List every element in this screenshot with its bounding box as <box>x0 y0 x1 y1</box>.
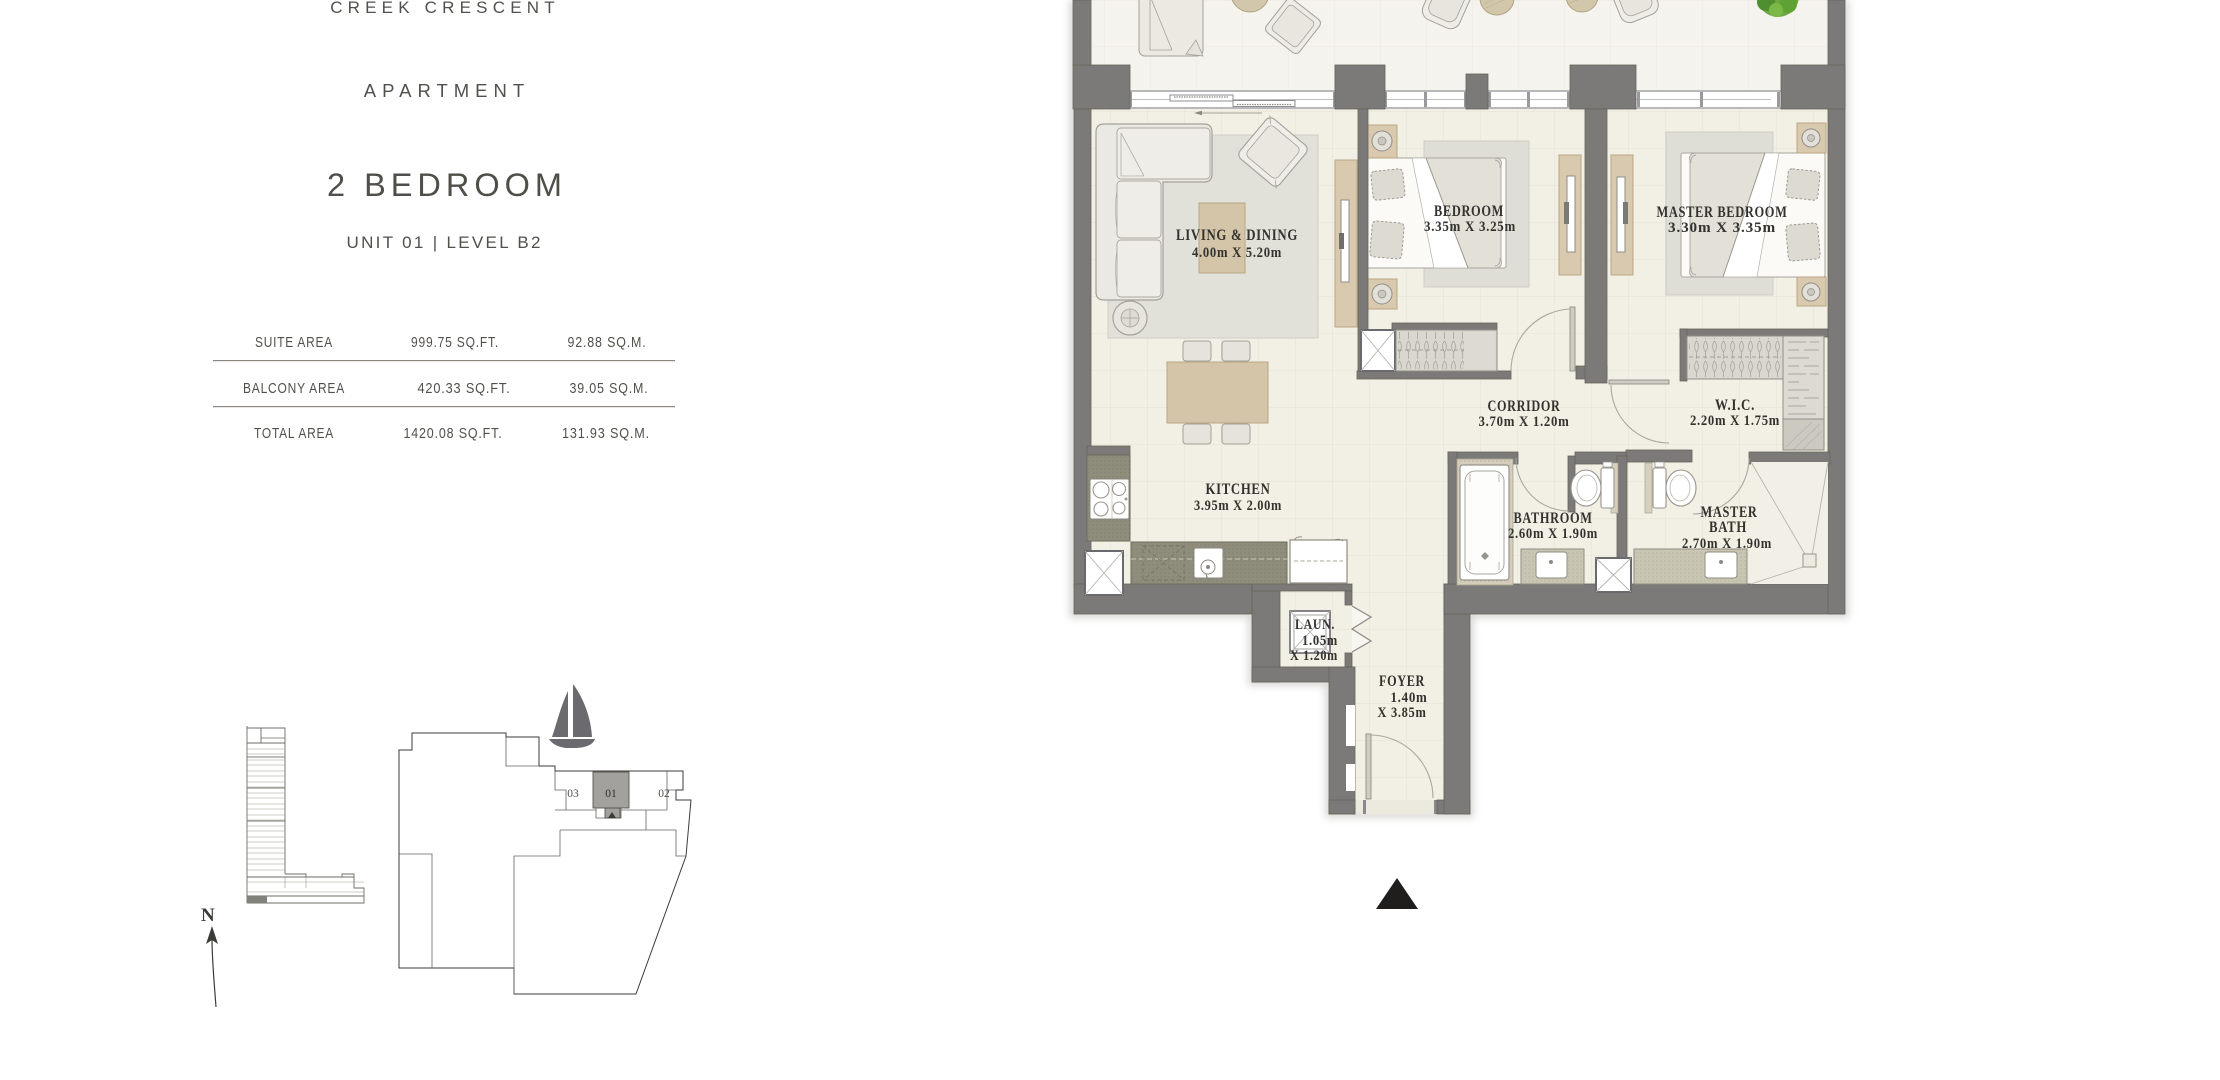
svg-text:FOYER: FOYER <box>1379 673 1425 690</box>
svg-text:02: 02 <box>658 788 670 800</box>
svg-text:X 3.85m: X 3.85m <box>1378 705 1427 721</box>
svg-text:UNIT 01 | LEVEL B2: UNIT 01 | LEVEL B2 <box>347 233 546 252</box>
svg-text:MASTER BEDROOM: MASTER BEDROOM <box>1657 204 1788 221</box>
svg-text:3.70m X 1.20m: 3.70m X 1.20m <box>1479 414 1570 430</box>
svg-text:SUITE AREA: SUITE AREA <box>255 334 333 351</box>
svg-text:420.33 SQ.FT.: 420.33 SQ.FT. <box>418 380 511 397</box>
svg-text:3.95m X 2.00m: 3.95m X 2.00m <box>1194 498 1282 514</box>
svg-text:BATHROOM: BATHROOM <box>1514 510 1593 527</box>
svg-text:999.75 SQ.FT.: 999.75 SQ.FT. <box>411 334 499 351</box>
svg-text:131.93 SQ.M.: 131.93 SQ.M. <box>562 425 650 442</box>
svg-text:2.70m X 1.90m: 2.70m X 1.90m <box>1682 536 1772 552</box>
svg-text:KITCHEN: KITCHEN <box>1206 481 1271 498</box>
svg-text:APARTMENT: APARTMENT <box>364 80 530 101</box>
svg-text:W.I.C.: W.I.C. <box>1715 397 1755 414</box>
svg-text:N: N <box>201 905 215 926</box>
svg-text:LIVING & DINING: LIVING & DINING <box>1176 227 1298 244</box>
svg-text:LAUN.: LAUN. <box>1295 617 1335 633</box>
svg-text:01: 01 <box>605 788 617 800</box>
svg-text:CORRIDOR: CORRIDOR <box>1488 398 1561 415</box>
svg-text:TOTAL AREA: TOTAL AREA <box>254 425 334 442</box>
svg-text:2.20m X 1.75m: 2.20m X 1.75m <box>1690 413 1780 429</box>
svg-text:2 BEDROOM: 2 BEDROOM <box>327 167 567 203</box>
svg-text:CREEK CRESCENT: CREEK CRESCENT <box>330 0 560 17</box>
svg-text:4.00m X 5.20m: 4.00m X 5.20m <box>1192 245 1282 261</box>
svg-text:03: 03 <box>567 788 579 800</box>
svg-text:3.30m X 3.35m: 3.30m X 3.35m <box>1668 220 1776 236</box>
svg-text:1.40m: 1.40m <box>1391 690 1428 706</box>
svg-text:BALCONY AREA: BALCONY AREA <box>243 380 345 397</box>
svg-text:BEDROOM: BEDROOM <box>1434 203 1504 220</box>
svg-text:2.60m X 1.90m: 2.60m X 1.90m <box>1508 526 1598 542</box>
svg-text:1420.08 SQ.FT.: 1420.08 SQ.FT. <box>404 425 503 442</box>
svg-text:X 1.20m: X 1.20m <box>1290 648 1338 664</box>
svg-text:39.05 SQ.M.: 39.05 SQ.M. <box>570 380 649 397</box>
svg-text:1.05m: 1.05m <box>1302 633 1338 649</box>
svg-text:BATH: BATH <box>1709 519 1747 536</box>
svg-text:92.88 SQ.M.: 92.88 SQ.M. <box>568 334 647 351</box>
svg-text:3.35m X 3.25m: 3.35m X 3.25m <box>1424 219 1516 235</box>
